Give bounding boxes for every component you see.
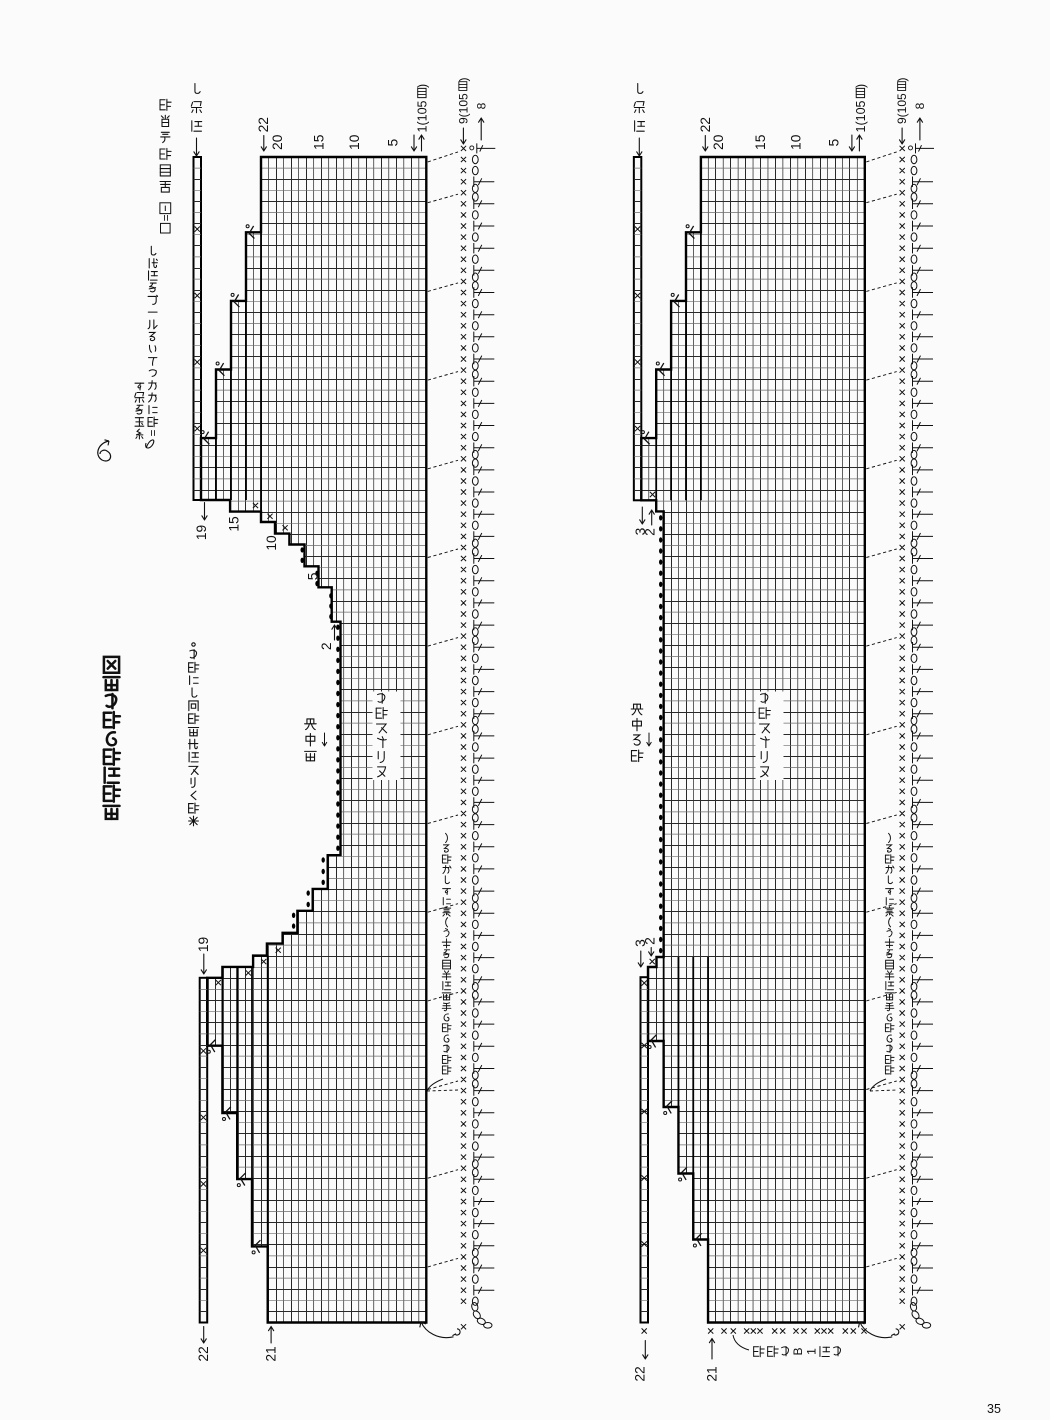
svg-text:): ) [854,84,868,88]
svg-text:22: 22 [256,117,271,132]
svg-text:1(105: 1(105 [416,100,430,132]
svg-text:5: 5 [826,139,841,147]
svg-text:5: 5 [386,139,401,147]
svg-text:9(105: 9(105 [895,93,909,124]
svg-text:15: 15 [753,134,768,150]
svg-text:35: 35 [987,1402,1001,1415]
svg-text:): ) [456,78,470,82]
svg-text:15: 15 [227,516,242,532]
svg-text:21: 21 [704,1366,719,1381]
svg-text:22: 22 [633,1366,648,1381]
svg-text:9(105: 9(105 [456,93,470,124]
svg-text:20: 20 [711,134,726,150]
svg-text:10: 10 [788,134,803,150]
svg-text:22: 22 [196,1346,211,1361]
svg-text:=: = [146,429,160,436]
svg-text:22: 22 [698,117,713,132]
svg-text:15: 15 [312,134,327,150]
svg-text:2: 2 [642,937,657,945]
svg-text:): ) [895,78,909,82]
svg-text:10: 10 [264,535,279,551]
svg-text:2: 2 [642,528,657,536]
svg-text:8: 8 [913,102,927,109]
svg-text:21: 21 [264,1346,279,1361]
svg-text:2: 2 [319,642,334,650]
svg-text:20: 20 [270,134,285,150]
svg-text:19: 19 [194,525,209,541]
svg-text:19: 19 [196,937,211,953]
svg-text:=: = [159,214,173,221]
svg-text:8: 8 [474,102,488,109]
svg-text:5: 5 [305,572,320,580]
svg-text:): ) [416,84,430,88]
svg-text:10: 10 [347,134,362,150]
svg-text:B: B [791,1347,805,1355]
svg-text:1: 1 [804,1348,818,1355]
svg-text:1(105: 1(105 [854,100,868,132]
